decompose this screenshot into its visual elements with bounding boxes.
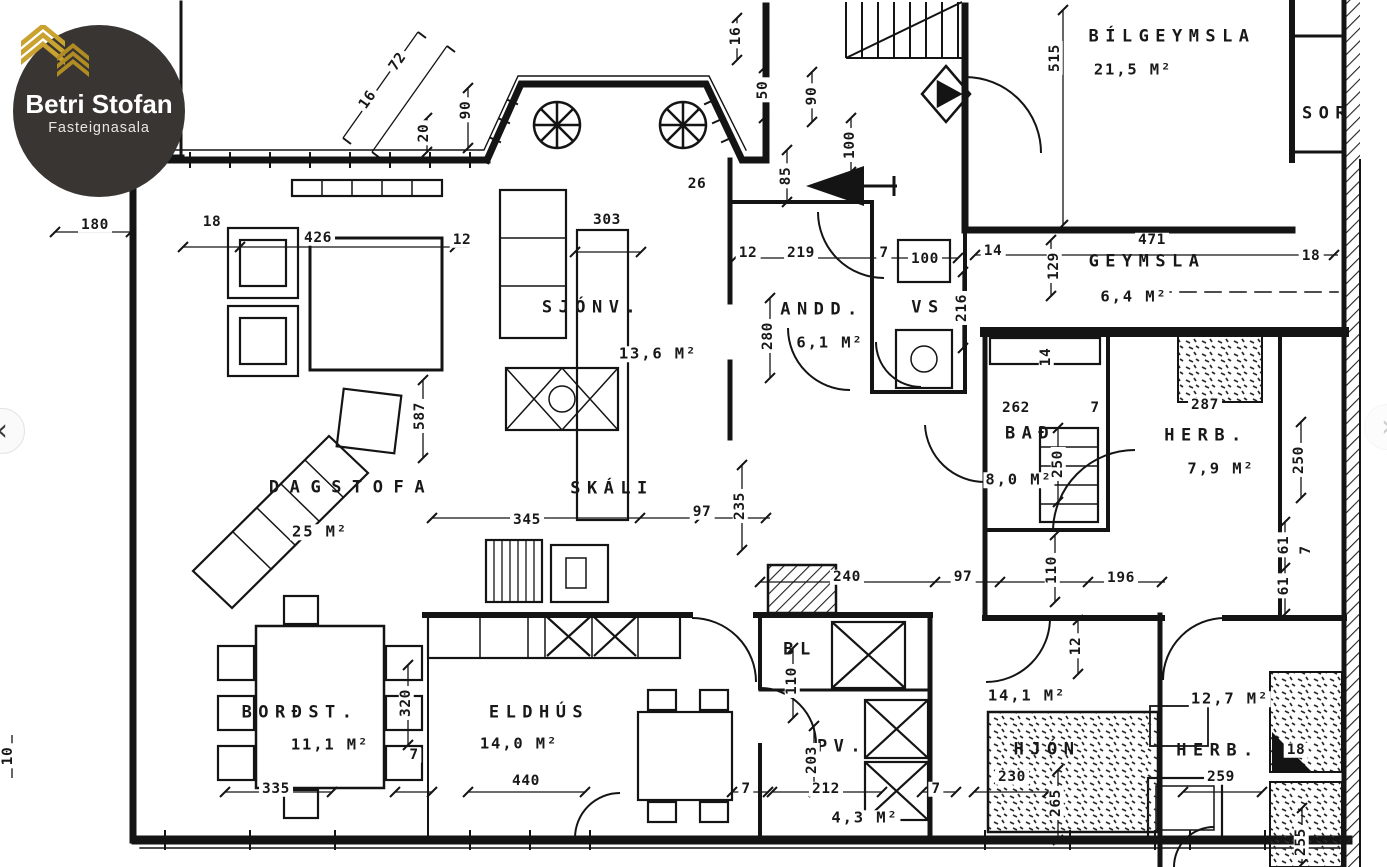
dim-label: 265 bbox=[1049, 786, 1064, 820]
stairs bbox=[846, 2, 962, 58]
dim-label: 18 bbox=[1284, 743, 1309, 758]
chevron-left-icon: ‹ bbox=[0, 416, 8, 446]
dim-label: 7 bbox=[406, 748, 421, 763]
room-label-andd: ANDD. bbox=[780, 302, 863, 319]
dim-label: 7 bbox=[876, 246, 891, 261]
dim-label: 14 bbox=[981, 244, 1006, 259]
dim-label: 90 bbox=[805, 84, 820, 109]
room-label-eldhus: ELDHÚS bbox=[489, 705, 589, 722]
chevron-right-icon: › bbox=[1381, 412, 1387, 442]
dim-label: 12 bbox=[1069, 634, 1084, 659]
dim-label: 100 bbox=[908, 252, 942, 267]
room-area-andd: 6,1 M² bbox=[794, 335, 865, 351]
dim-label: 259 bbox=[1204, 770, 1238, 785]
dim-label: 110 bbox=[1045, 553, 1060, 587]
logo-subtitle: Fasteignasala bbox=[48, 120, 150, 136]
room-label-bad: BAÐ bbox=[1005, 426, 1055, 443]
room-area-pv: 4,3 M² bbox=[829, 810, 900, 826]
room-label-bilgeymsla: BÍLGEYMSLA bbox=[1089, 29, 1256, 46]
room-label-herb2: HERB. bbox=[1176, 743, 1259, 760]
dim-label: 100 bbox=[843, 128, 858, 162]
dim-label: 18 bbox=[200, 215, 225, 230]
room-label-dagstofa: DAGSTOFA bbox=[269, 480, 435, 497]
room-area-hjon: 14,1 M² bbox=[986, 688, 1068, 704]
room-area-sjonv: 13,6 M² bbox=[617, 346, 699, 362]
dim-label: 196 bbox=[1104, 571, 1138, 586]
dim-label: 7 bbox=[1087, 401, 1102, 416]
room-area-dagstofa: 25 M² bbox=[290, 524, 350, 540]
dim-label: 250 bbox=[1051, 447, 1066, 481]
room-label-geymsla: GEYMSLA bbox=[1089, 254, 1206, 271]
dim-label: 129 bbox=[1047, 249, 1062, 283]
dim-label: 280 bbox=[761, 319, 776, 353]
dim-label: 61 bbox=[1277, 533, 1292, 558]
dim-label: 61 bbox=[1277, 574, 1292, 599]
dim-label: 16 bbox=[729, 24, 744, 49]
dim-label: 587 bbox=[413, 399, 428, 433]
dim-label: 335 bbox=[259, 782, 293, 797]
dim-label: 97 bbox=[690, 505, 715, 520]
room-area-bilgeymsla: 21,5 M² bbox=[1092, 62, 1174, 78]
dim-label: 440 bbox=[509, 774, 543, 789]
dim-label: 230 bbox=[995, 770, 1029, 785]
dim-label: 97 bbox=[951, 570, 976, 585]
dim-label: 85 bbox=[779, 164, 794, 189]
room-label-hjon: HJÓN bbox=[1014, 742, 1081, 759]
dim-label: 235 bbox=[733, 489, 748, 523]
dim-label: 110 bbox=[785, 664, 800, 698]
dim-label: 219 bbox=[784, 246, 818, 261]
dim-label: 240 bbox=[830, 570, 864, 585]
dim-label: 303 bbox=[590, 213, 624, 228]
dim-label: 250 bbox=[1292, 443, 1307, 477]
room-area-herb1: 7,9 M² bbox=[1185, 461, 1256, 477]
dim-label: 515 bbox=[1048, 41, 1063, 75]
dim-label: 12 bbox=[450, 233, 475, 248]
dim-label: 180 bbox=[78, 218, 112, 233]
dim-label: 262 bbox=[999, 401, 1033, 416]
dim-label: 320 bbox=[399, 686, 414, 720]
floorplan-image: BÍLGEYMSLA 21,5 M² SOR GEYMSLA 6,4 M² SJ… bbox=[0, 0, 1387, 867]
logo-buildings-icon bbox=[13, 25, 99, 77]
room-label-bordst: BORÐST. bbox=[242, 705, 359, 722]
dim-label: 255 bbox=[1294, 825, 1309, 859]
dim-label: 7 bbox=[1299, 542, 1314, 557]
dim-label: 20 bbox=[417, 121, 432, 146]
dim-label: 7 bbox=[738, 782, 753, 797]
room-area-bordst: 11,1 M² bbox=[289, 737, 371, 753]
dim-label: 426 bbox=[301, 231, 335, 246]
dim-label: 90 bbox=[459, 98, 474, 123]
bay-window-fans bbox=[534, 102, 706, 148]
room-label-herb1: HERB. bbox=[1164, 428, 1247, 445]
dim-label: 203 bbox=[805, 743, 820, 777]
room-area-bad: 8,0 M² bbox=[983, 472, 1054, 488]
room-area-eldhus: 14,0 M² bbox=[478, 736, 560, 752]
dim-label: 287 bbox=[1188, 398, 1222, 413]
dim-label: 345 bbox=[510, 513, 544, 528]
room-label-bl: BL bbox=[783, 642, 816, 659]
dim-label: 212 bbox=[809, 782, 843, 797]
dim-label: 216 bbox=[955, 291, 970, 325]
room-area-herb2: 12,7 M² bbox=[1189, 691, 1271, 707]
dim-label: 26 bbox=[685, 177, 710, 192]
dim-label: 10 bbox=[1, 744, 16, 769]
agency-logo: Betri Stofan Fasteignasala bbox=[13, 25, 185, 197]
room-label-vs: VS bbox=[911, 300, 944, 317]
logo-title: Betri Stofan bbox=[25, 89, 172, 120]
dim-label: 7 bbox=[928, 782, 943, 797]
dim-label: 12 bbox=[736, 246, 761, 261]
room-label-sor: SOR bbox=[1302, 106, 1352, 123]
dim-label: 471 bbox=[1135, 233, 1169, 248]
dim-label: 14 bbox=[1039, 345, 1054, 370]
room-label-pv: PV. bbox=[817, 739, 867, 756]
dim-label: 50 bbox=[756, 78, 771, 103]
room-label-sjonv: SJÓNV. bbox=[542, 300, 642, 317]
room-area-geymsla: 6,4 M² bbox=[1098, 289, 1169, 305]
room-label-skali: SKÁLI bbox=[570, 481, 653, 498]
dim-label: 18 bbox=[1299, 249, 1324, 264]
